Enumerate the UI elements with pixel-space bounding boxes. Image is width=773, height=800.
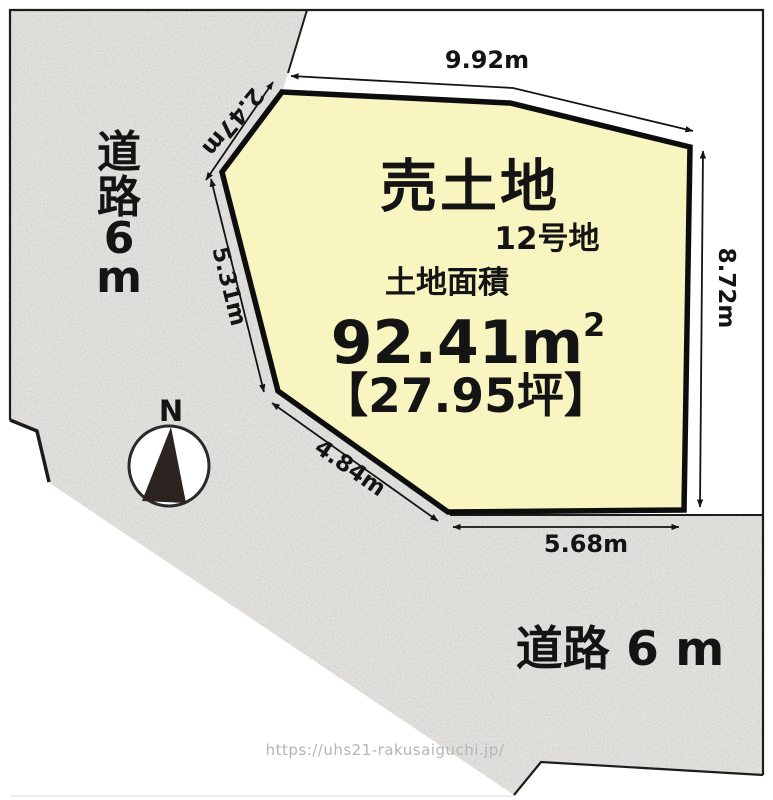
dim-label-right: 8.72m bbox=[713, 248, 739, 329]
plot-diagram: 9.92m 2.47m 5.31m 4.84m 5.68m 8.72m 売土地 … bbox=[0, 0, 773, 800]
area-superscript: 2 bbox=[583, 306, 605, 344]
dim-label-top: 9.92m bbox=[445, 46, 529, 74]
lot-number: 12号地 bbox=[494, 221, 599, 257]
parcel-title: 売土地 bbox=[380, 154, 560, 220]
road-label-left-char-4: m bbox=[96, 252, 142, 303]
north-label: N bbox=[159, 394, 183, 428]
watermark-url: https://uhs21-rakusaiguchi.jp/ bbox=[266, 741, 505, 759]
dim-label-bottom: 5.68m bbox=[544, 530, 628, 558]
road-label-left-char-1: 道 bbox=[97, 127, 141, 178]
plot-diagram-canvas: 9.92m 2.47m 5.31m 4.84m 5.68m 8.72m 売土地 … bbox=[0, 0, 773, 800]
road-label-bottom: 道路 6 m bbox=[516, 622, 724, 677]
road-label-left: 道 路 6 m bbox=[96, 127, 142, 303]
area-value: 92.41m bbox=[331, 308, 583, 378]
area-tsubo: 【27.95坪】 bbox=[321, 369, 611, 424]
area-value-group: 92.41m2 bbox=[331, 306, 606, 378]
area-label: 土地面積 bbox=[385, 265, 509, 301]
